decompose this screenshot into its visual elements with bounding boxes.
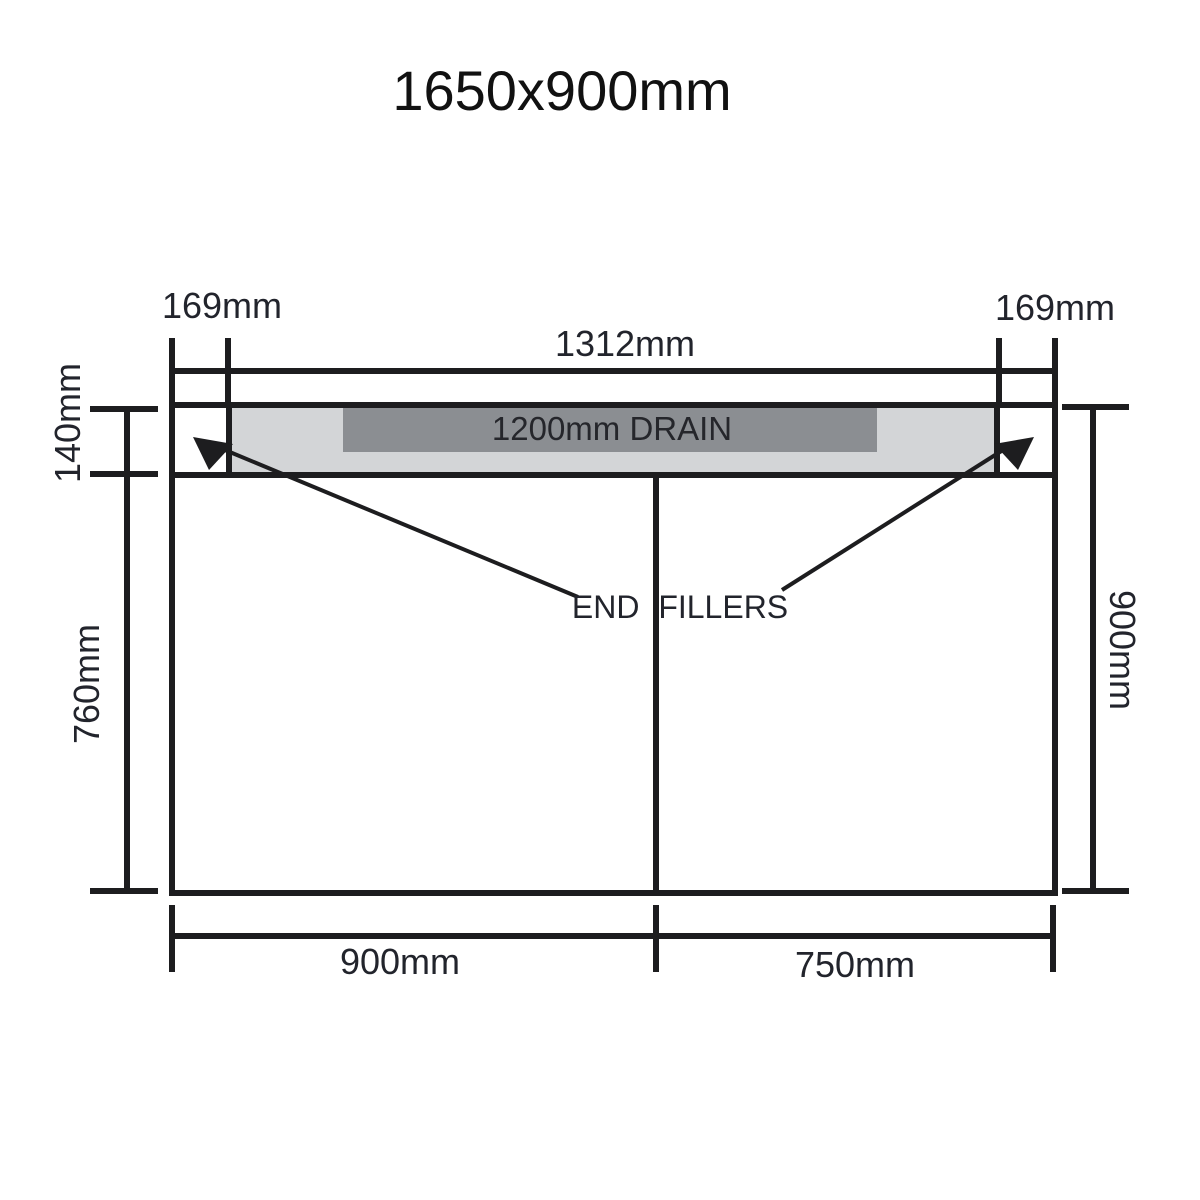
dim-label-overall-height: 900mm (1103, 590, 1141, 710)
drain-label: 1200mm DRAIN (492, 410, 732, 448)
dim-label-bottom-right-span: 750mm (795, 946, 915, 984)
dim-label-top-span: 1312mm (555, 325, 695, 363)
tray-outline (172, 405, 1055, 893)
dim-label-lower-height: 760mm (68, 624, 106, 744)
dim-label-drain-depth: 140mm (49, 363, 87, 483)
dim-label-top-right-offset: 169mm (995, 289, 1115, 327)
dim-label-bottom-left-span: 900mm (340, 943, 460, 981)
shower-tray-diagram-canvas: 1650x900mm (0, 0, 1200, 1200)
end-fillers-label: END FILLERS (572, 589, 788, 626)
dim-label-top-left-offset: 169mm (162, 287, 282, 325)
